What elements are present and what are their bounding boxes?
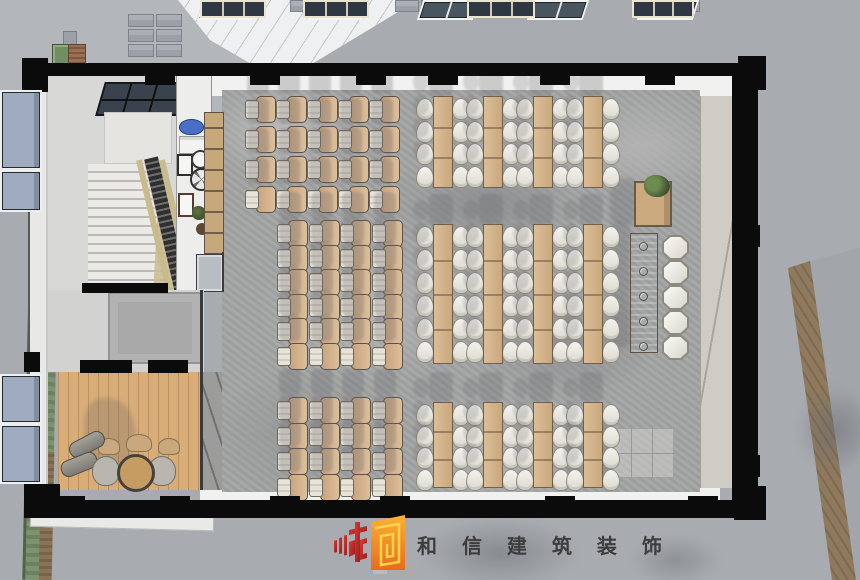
table-seam bbox=[434, 157, 452, 159]
dining-chair bbox=[466, 166, 484, 188]
chair-shadow bbox=[279, 420, 301, 446]
chair-shadow bbox=[413, 269, 429, 289]
wood-shelf-unit bbox=[204, 112, 224, 254]
dining-chair bbox=[602, 121, 620, 143]
chair-shadow bbox=[374, 192, 396, 218]
window-mullion bbox=[346, 2, 348, 16]
dining-chair bbox=[602, 295, 620, 317]
dining-chair bbox=[602, 249, 620, 271]
table-shadow bbox=[479, 194, 503, 224]
tree-shadow bbox=[795, 385, 860, 475]
chair-shadow bbox=[463, 443, 479, 463]
clerestory-window bbox=[527, 0, 589, 20]
dining-chair bbox=[602, 426, 620, 448]
tablet-chair bbox=[309, 474, 339, 500]
chair-shadow bbox=[563, 400, 579, 420]
chair-shadow bbox=[309, 128, 331, 154]
chair-shadow bbox=[374, 420, 396, 446]
long-table bbox=[483, 402, 503, 488]
table-seam bbox=[484, 127, 502, 129]
table-seam bbox=[484, 294, 502, 296]
chair-shadow bbox=[463, 421, 479, 441]
chair-seat bbox=[288, 343, 308, 370]
tablet-chair bbox=[340, 343, 370, 369]
chair-front bbox=[309, 478, 323, 497]
chair-shadow bbox=[513, 443, 529, 463]
dining-chair bbox=[602, 318, 620, 340]
chair-front bbox=[340, 478, 354, 497]
chair-seat bbox=[256, 186, 276, 213]
chair-shadow bbox=[563, 421, 579, 441]
wall-column bbox=[688, 496, 718, 518]
chair-shadow bbox=[371, 98, 393, 124]
lounge-chair-back bbox=[158, 438, 180, 455]
table-shadow bbox=[529, 194, 553, 224]
bar-stool bbox=[662, 285, 689, 310]
glass-cabinet bbox=[196, 254, 224, 292]
chair-seat bbox=[320, 343, 340, 370]
table-seam bbox=[534, 459, 552, 461]
chair-shadow bbox=[563, 95, 579, 115]
chair-shadow bbox=[342, 290, 364, 316]
chair-shadow bbox=[513, 95, 529, 115]
chair-shadow bbox=[563, 200, 579, 220]
blue-basin bbox=[179, 119, 204, 135]
table-seam bbox=[584, 294, 602, 296]
window-mullion bbox=[222, 2, 224, 16]
roof-vent bbox=[128, 44, 154, 57]
long-table bbox=[533, 402, 553, 488]
long-table bbox=[533, 96, 553, 188]
dining-chair bbox=[416, 166, 434, 188]
bottom-window bbox=[303, 0, 369, 18]
dining-chair bbox=[602, 404, 620, 426]
table-seam bbox=[534, 127, 552, 129]
chair-shadow bbox=[463, 223, 479, 243]
table-seam bbox=[434, 459, 452, 461]
wall-column bbox=[736, 225, 760, 247]
corner-column bbox=[738, 56, 766, 90]
table-seam bbox=[584, 157, 602, 159]
dining-chair bbox=[602, 341, 620, 363]
stool-cushion bbox=[664, 237, 687, 258]
long-table bbox=[433, 402, 453, 488]
tablet-chair bbox=[340, 474, 370, 500]
window-mullion bbox=[555, 2, 562, 18]
chair-shadow bbox=[513, 400, 529, 420]
bar-stool bbox=[662, 235, 689, 260]
chair-shadow bbox=[374, 266, 396, 292]
dining-chair bbox=[566, 469, 584, 491]
chair-shadow bbox=[342, 315, 364, 341]
chair-shadow bbox=[342, 266, 364, 292]
chair-shadow bbox=[513, 246, 529, 266]
coffee-table bbox=[117, 454, 155, 492]
chair-shadow bbox=[340, 128, 362, 154]
window-mullion bbox=[511, 2, 513, 16]
chair-shadow bbox=[563, 292, 579, 312]
chair-shadow bbox=[279, 315, 301, 341]
wall-column bbox=[55, 496, 85, 518]
chair-shadow bbox=[413, 443, 429, 463]
dining-chair bbox=[602, 226, 620, 248]
chair-shadow bbox=[413, 117, 429, 137]
chair-shadow bbox=[374, 395, 396, 421]
wall-column bbox=[645, 63, 675, 85]
long-table bbox=[483, 224, 503, 364]
dining-chair bbox=[602, 469, 620, 491]
wall-column bbox=[145, 63, 175, 85]
chair-shadow bbox=[311, 290, 333, 316]
table-shadow bbox=[429, 372, 453, 402]
corner-column bbox=[22, 58, 48, 92]
chair-front bbox=[277, 478, 291, 497]
tablet-chair bbox=[372, 343, 402, 369]
stool-cushion bbox=[664, 312, 687, 333]
table-seam bbox=[484, 157, 502, 159]
chair-shadow bbox=[563, 117, 579, 137]
chair-shadow bbox=[413, 400, 429, 420]
chair-shadow bbox=[279, 217, 301, 243]
table-seam bbox=[434, 127, 452, 129]
chair-shadow bbox=[311, 192, 333, 218]
chair-shadow bbox=[413, 95, 429, 115]
chair-shadow bbox=[311, 446, 333, 472]
stair-landing bbox=[104, 112, 172, 164]
roof-vent bbox=[156, 44, 182, 57]
chair-shadow bbox=[342, 369, 364, 395]
bar-stool bbox=[662, 310, 689, 335]
chair-shadow bbox=[463, 95, 479, 115]
chair-shadow bbox=[342, 446, 364, 472]
roof-vent bbox=[128, 29, 154, 42]
wall-column bbox=[270, 496, 300, 518]
chair-shadow bbox=[374, 290, 396, 316]
chair-shadow bbox=[563, 269, 579, 289]
chair-shadow bbox=[342, 217, 364, 243]
dining-chair bbox=[416, 341, 434, 363]
chair-shadow bbox=[513, 315, 529, 335]
right-window bbox=[0, 90, 42, 170]
chair-shadow bbox=[374, 315, 396, 341]
wall-column bbox=[736, 455, 760, 477]
chair-shadow bbox=[413, 421, 429, 441]
table-seam bbox=[534, 431, 552, 433]
chair-shadow bbox=[342, 192, 364, 218]
table-seam bbox=[484, 329, 502, 331]
chair-shadow bbox=[513, 269, 529, 289]
stool-cushion bbox=[664, 262, 687, 283]
interior-wall bbox=[80, 360, 132, 373]
long-table bbox=[533, 224, 553, 364]
chair-shadow bbox=[374, 369, 396, 395]
chair-shadow bbox=[513, 421, 529, 441]
chair-front bbox=[309, 347, 323, 366]
chair-shadow bbox=[311, 266, 333, 292]
chair-shadow bbox=[340, 158, 362, 184]
bar-decor bbox=[639, 317, 648, 326]
chair-shadow bbox=[247, 98, 269, 124]
long-table bbox=[433, 96, 453, 188]
window-mullion bbox=[490, 2, 492, 16]
chair-shadow bbox=[279, 446, 301, 472]
tablet-chair bbox=[277, 343, 307, 369]
chair-shadow bbox=[278, 98, 300, 124]
window-mullion bbox=[325, 2, 327, 16]
chair-shadow bbox=[311, 241, 333, 267]
dining-chair bbox=[602, 272, 620, 294]
chair-shadow bbox=[513, 292, 529, 312]
company-name: 和 信 建 筑 装 饰 bbox=[417, 530, 671, 559]
right-window bbox=[0, 424, 42, 484]
long-table bbox=[483, 96, 503, 188]
glass-partition bbox=[200, 290, 203, 490]
dining-chair bbox=[566, 341, 584, 363]
dining-chair bbox=[602, 166, 620, 188]
chair-shadow bbox=[374, 446, 396, 472]
chair-shadow bbox=[513, 117, 529, 137]
chair-shadow bbox=[413, 140, 429, 160]
table-shadow bbox=[429, 194, 453, 224]
table-seam bbox=[584, 431, 602, 433]
table-seam bbox=[584, 127, 602, 129]
table-shadow bbox=[579, 194, 603, 224]
chair-shadow bbox=[463, 315, 479, 335]
chair-shadow bbox=[278, 128, 300, 154]
plant bbox=[644, 175, 670, 197]
window-mullion bbox=[672, 2, 674, 16]
glass-partition bbox=[222, 252, 224, 292]
wall-column bbox=[428, 63, 458, 85]
right-wall bbox=[732, 63, 758, 518]
chair-shadow bbox=[279, 192, 301, 218]
chair-shadow bbox=[279, 395, 301, 421]
chair-shadow bbox=[513, 200, 529, 220]
chair-shadow bbox=[247, 158, 269, 184]
skylight bbox=[95, 82, 176, 116]
chair-shadow bbox=[413, 292, 429, 312]
company-logo: 和 信 建 筑 装 饰 bbox=[333, 514, 663, 574]
chair-seat bbox=[320, 474, 340, 501]
chair-shadow bbox=[247, 128, 269, 154]
roof-vent bbox=[156, 29, 182, 42]
floorplan-rendering: 和 信 建 筑 装 饰 bbox=[0, 0, 860, 580]
chair-shadow bbox=[563, 378, 579, 398]
chair-shadow bbox=[463, 140, 479, 160]
chair-shadow bbox=[279, 241, 301, 267]
bar-decor bbox=[639, 267, 648, 276]
chair-shadow bbox=[342, 241, 364, 267]
chair-shadow bbox=[340, 98, 362, 124]
chair-shadow bbox=[371, 128, 393, 154]
interior-wall bbox=[148, 360, 188, 373]
chair-shadow bbox=[371, 158, 393, 184]
bottom-window bbox=[632, 0, 694, 18]
chair-shadow bbox=[513, 378, 529, 398]
chair-shadow bbox=[413, 200, 429, 220]
table-shadow bbox=[529, 372, 553, 402]
bottom-window bbox=[467, 0, 535, 18]
chair-shadow bbox=[563, 443, 579, 463]
chair-shadow bbox=[311, 315, 333, 341]
wall-column bbox=[24, 352, 40, 372]
wall-column bbox=[160, 496, 190, 518]
table-seam bbox=[584, 260, 602, 262]
wall-column bbox=[356, 63, 386, 85]
chair-shadow bbox=[463, 292, 479, 312]
chair-shadow bbox=[279, 290, 301, 316]
bottom-window bbox=[200, 0, 266, 18]
chair-shadow bbox=[413, 378, 429, 398]
stair-hall bbox=[46, 76, 176, 290]
long-table bbox=[583, 402, 603, 488]
chair-shadow bbox=[311, 420, 333, 446]
roof-vent bbox=[395, 0, 419, 12]
table-seam bbox=[534, 329, 552, 331]
table-seam bbox=[584, 329, 602, 331]
table-seam bbox=[434, 294, 452, 296]
chair-shadow bbox=[463, 378, 479, 398]
chair-shadow bbox=[513, 140, 529, 160]
window-mullion bbox=[243, 2, 245, 16]
chair-shadow bbox=[463, 246, 479, 266]
dining-chair bbox=[602, 447, 620, 469]
wall-column bbox=[250, 63, 280, 85]
table-seam bbox=[484, 260, 502, 262]
chair-shadow bbox=[311, 217, 333, 243]
chair-shadow bbox=[309, 158, 331, 184]
table-seam bbox=[534, 294, 552, 296]
chair-shadow bbox=[413, 223, 429, 243]
table-seam bbox=[434, 260, 452, 262]
table-seam bbox=[534, 157, 552, 159]
right-window bbox=[0, 374, 42, 424]
chair-shadow bbox=[563, 223, 579, 243]
dining-chair bbox=[566, 166, 584, 188]
chair-seat bbox=[351, 343, 371, 370]
table-seam bbox=[584, 459, 602, 461]
logo-mark bbox=[333, 514, 411, 574]
chair-shadow bbox=[374, 241, 396, 267]
window-side-bench bbox=[700, 96, 735, 488]
chair-shadow bbox=[311, 369, 333, 395]
chair-shadow bbox=[463, 400, 479, 420]
long-table bbox=[583, 224, 603, 364]
chair-front bbox=[277, 347, 291, 366]
chair-front bbox=[372, 347, 386, 366]
window-mullion bbox=[653, 2, 655, 16]
dining-chair bbox=[516, 341, 534, 363]
chair-shadow bbox=[279, 369, 301, 395]
chair-shadow bbox=[463, 200, 479, 220]
table-shadow bbox=[579, 372, 603, 402]
table-seam bbox=[484, 431, 502, 433]
dining-chair bbox=[602, 98, 620, 120]
wall-column bbox=[540, 63, 570, 85]
dining-chair bbox=[416, 469, 434, 491]
stool-cushion bbox=[664, 287, 687, 308]
chair-shadow bbox=[563, 246, 579, 266]
table-seam bbox=[434, 329, 452, 331]
chair-front bbox=[372, 478, 386, 497]
tablet-chair bbox=[309, 343, 339, 369]
chair-front bbox=[340, 347, 354, 366]
bar-decor bbox=[639, 292, 648, 301]
table-seam bbox=[434, 431, 452, 433]
dining-chair bbox=[602, 143, 620, 165]
corner-column bbox=[734, 486, 766, 520]
table-shadow bbox=[479, 372, 503, 402]
long-table bbox=[583, 96, 603, 188]
chair-shadow bbox=[563, 140, 579, 160]
chair-shadow bbox=[463, 269, 479, 289]
dining-chair bbox=[516, 469, 534, 491]
long-table bbox=[433, 224, 453, 364]
chair-seat bbox=[351, 474, 371, 501]
chair-seat bbox=[383, 343, 403, 370]
roof-vent bbox=[156, 14, 182, 27]
roof-vent bbox=[128, 14, 154, 27]
stool-cushion bbox=[664, 337, 687, 358]
right-window bbox=[0, 170, 42, 212]
interior-wall bbox=[82, 283, 168, 293]
chair-shadow bbox=[463, 117, 479, 137]
entry-vestibule bbox=[202, 372, 222, 490]
dining-chair bbox=[466, 341, 484, 363]
chair-shadow bbox=[342, 395, 364, 421]
table-seam bbox=[534, 260, 552, 262]
chair-shadow bbox=[342, 420, 364, 446]
chair-shadow bbox=[311, 395, 333, 421]
chair-front bbox=[245, 190, 259, 209]
bar-stool bbox=[662, 260, 689, 285]
chair-shadow bbox=[563, 315, 579, 335]
chair-shadow bbox=[374, 217, 396, 243]
tablet-chair bbox=[245, 186, 275, 212]
dining-chair bbox=[516, 166, 534, 188]
chair-shadow bbox=[279, 266, 301, 292]
table-seam bbox=[484, 459, 502, 461]
chair-shadow bbox=[513, 223, 529, 243]
dining-chair bbox=[466, 469, 484, 491]
rug bbox=[108, 292, 202, 364]
chair-shadow bbox=[413, 315, 429, 335]
window-light-reflection bbox=[612, 428, 674, 478]
bar-decor bbox=[639, 342, 648, 351]
window-mullion bbox=[445, 2, 452, 18]
chair-shadow bbox=[309, 98, 331, 124]
chair-shadow bbox=[413, 246, 429, 266]
bar-stool bbox=[662, 335, 689, 360]
bar-decor bbox=[639, 242, 648, 251]
lounge-chair-back bbox=[126, 434, 152, 452]
chair-shadow bbox=[278, 158, 300, 184]
lounge-armchair bbox=[92, 456, 120, 486]
